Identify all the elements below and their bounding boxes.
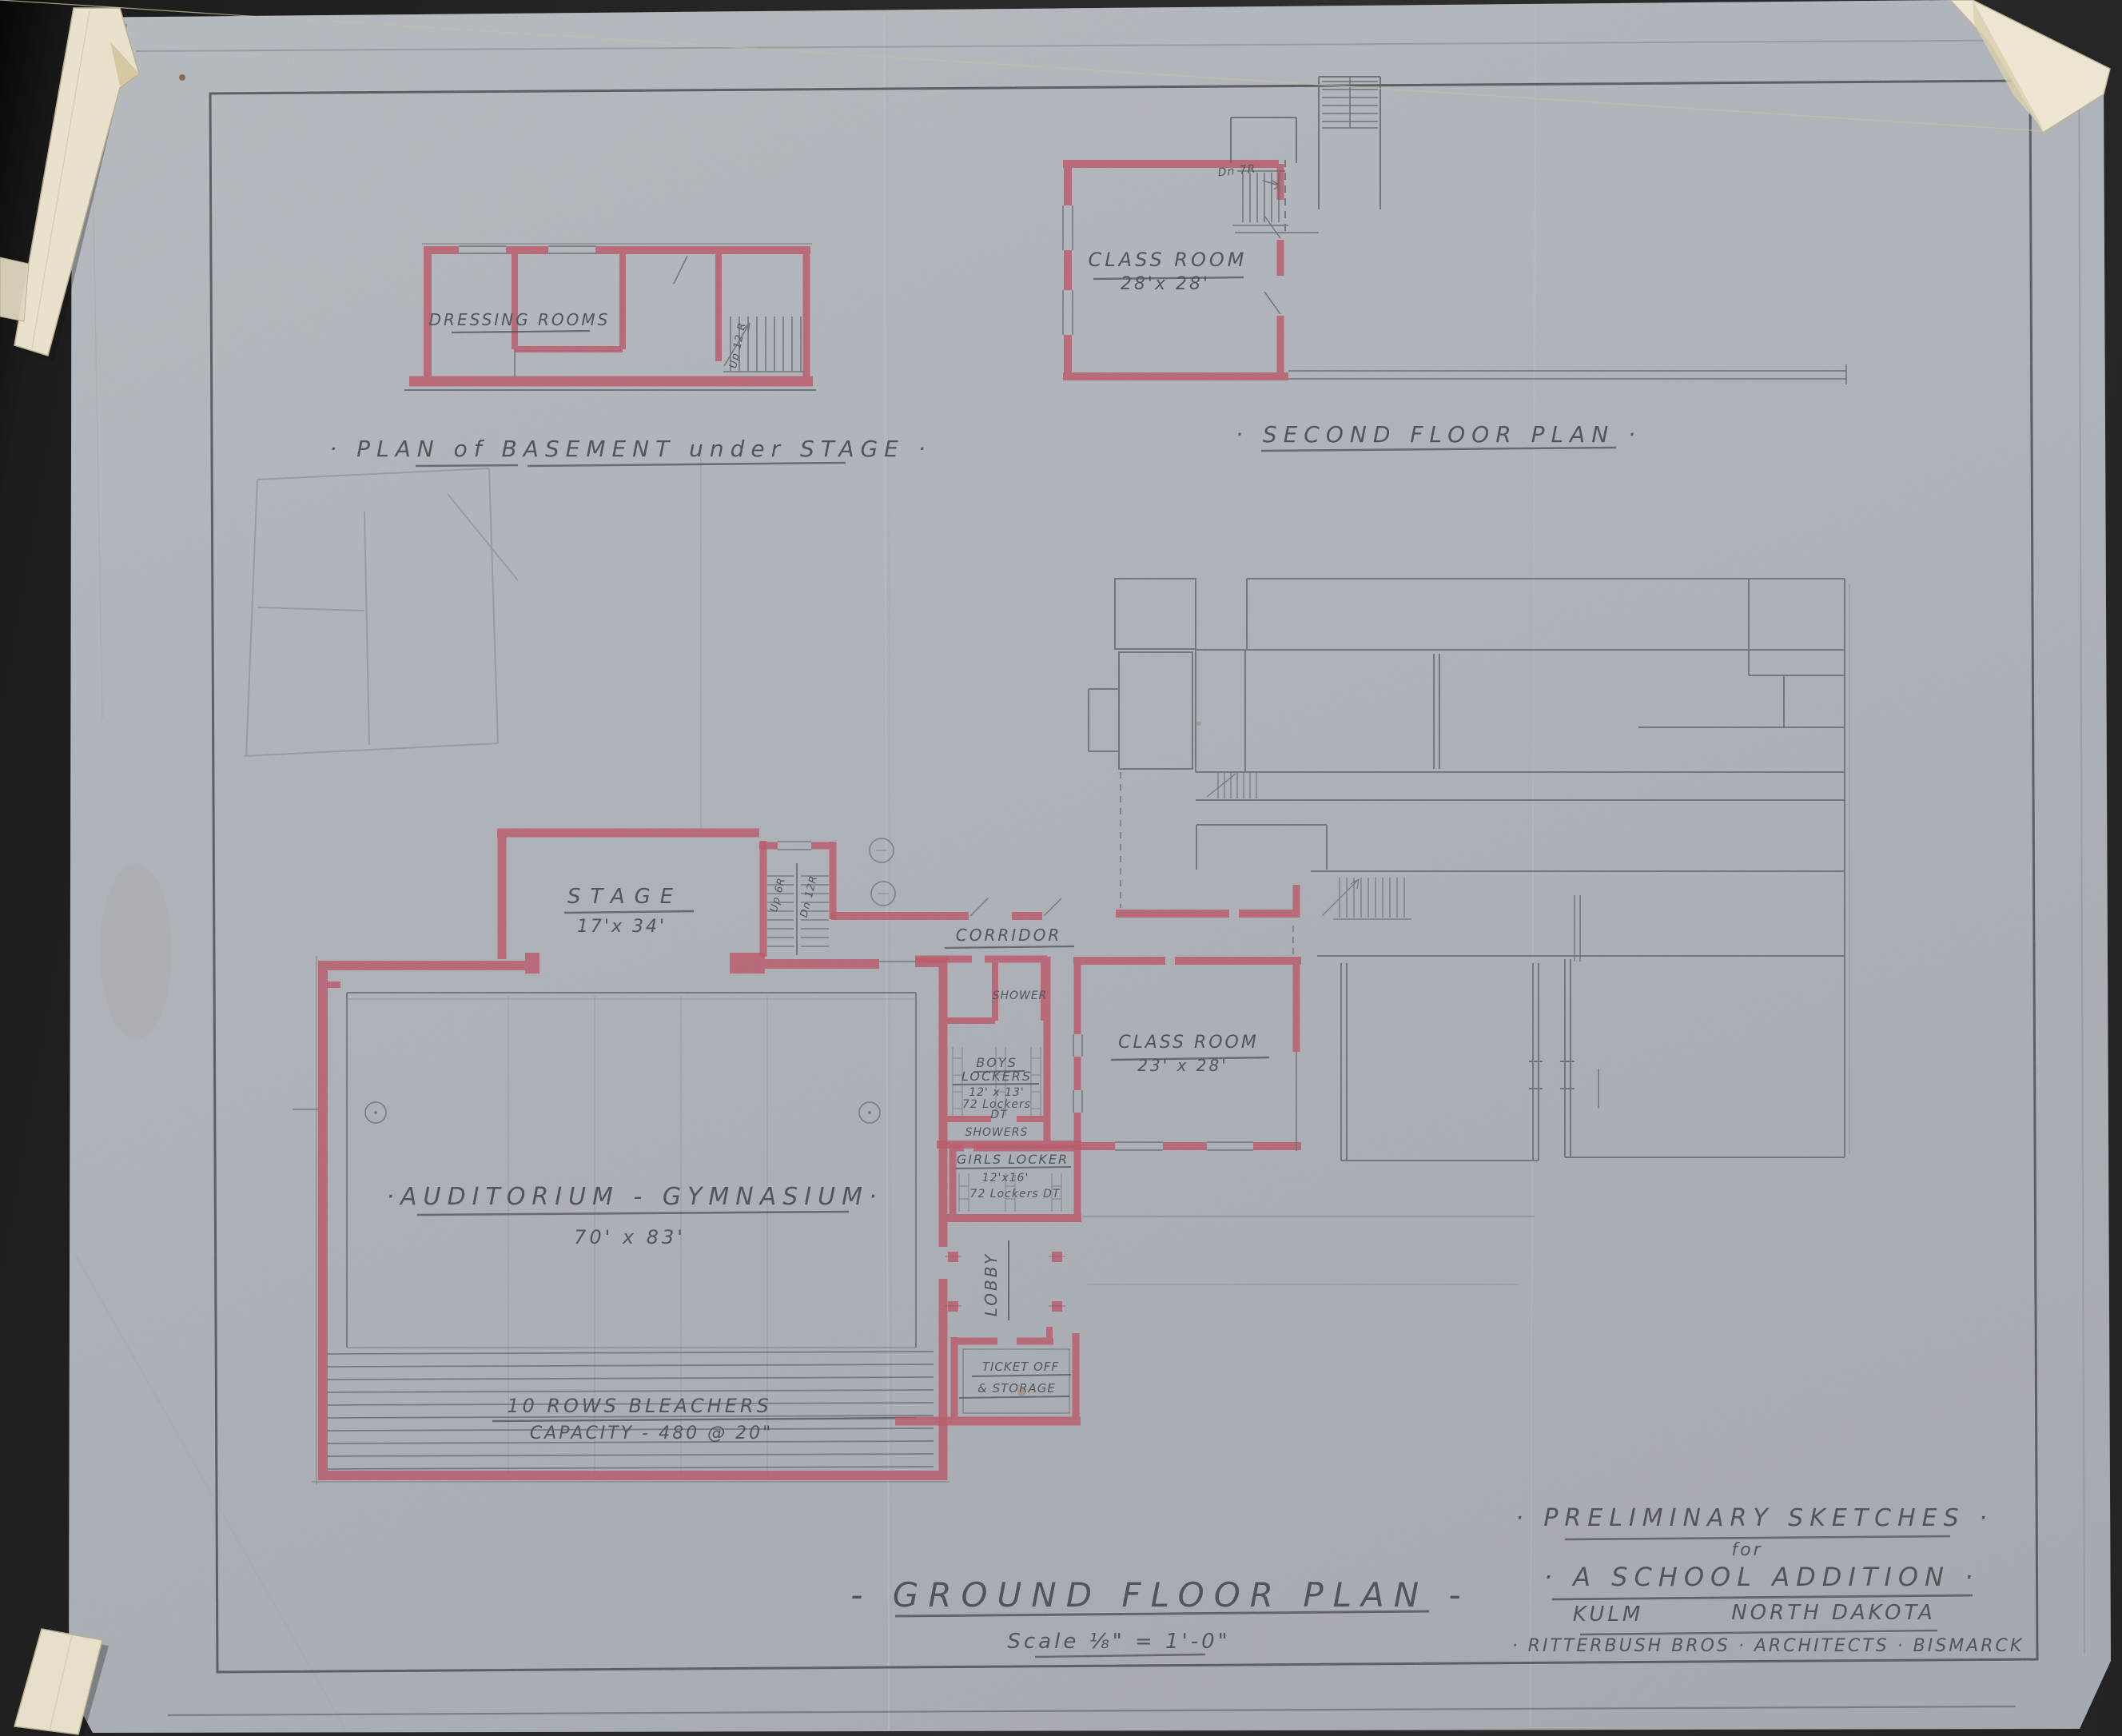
tape-left-edge (0, 257, 29, 321)
paper-grain (0, 0, 2122, 1736)
scanned-drawing-sheet: DRESSING ROOMS Up 12 R · PLAN of BASEMEN… (0, 0, 2122, 1736)
